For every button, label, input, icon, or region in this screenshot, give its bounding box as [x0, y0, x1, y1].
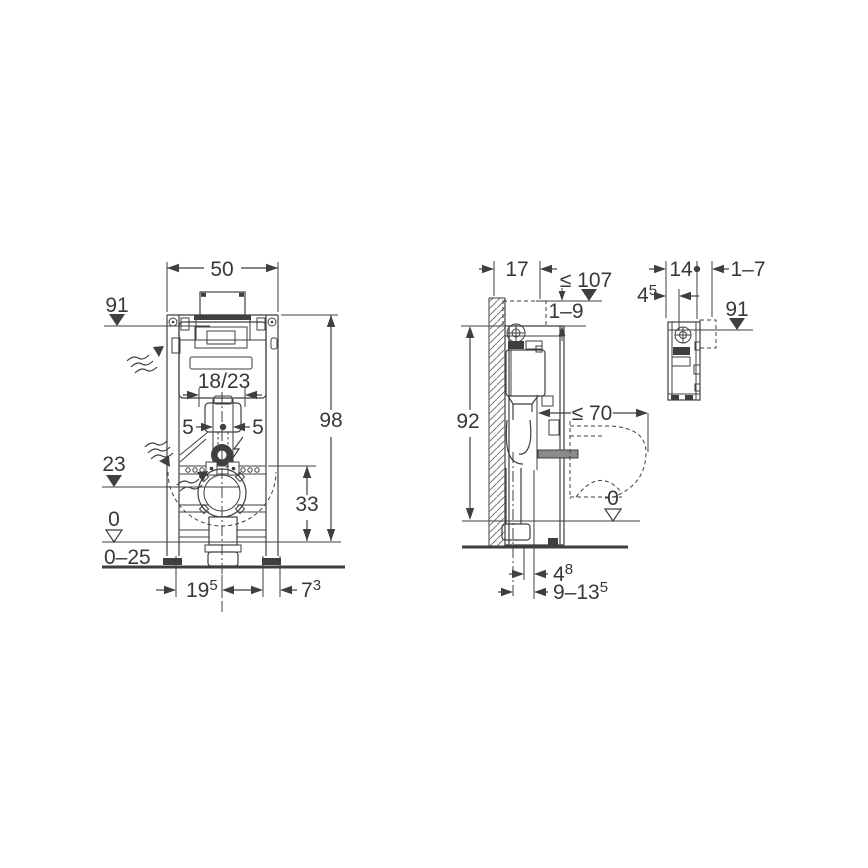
dim-label: 50 — [210, 258, 233, 281]
threaded-rod — [538, 450, 578, 458]
dim-label: 17 — [505, 258, 528, 281]
detail-level-91: 91 — [697, 298, 753, 330]
dim-label: 98 — [319, 409, 342, 432]
dim-front-width: 50 — [167, 258, 278, 312]
dim-label: 33 — [295, 493, 318, 516]
level-label: 91 — [725, 298, 748, 321]
dim-label: 5 — [182, 416, 194, 439]
side-view: 17 ≤ 107 1–9 92 — [456, 258, 648, 604]
front-actuator-box — [194, 292, 251, 320]
front-floor: 0–25 — [102, 546, 345, 569]
dim-label: 14 — [669, 258, 693, 281]
detail-actuator-box — [700, 320, 716, 348]
level-label: 0 — [108, 508, 120, 531]
level-marker-filled — [106, 475, 122, 487]
level-marker-open — [106, 530, 122, 542]
dim-side-cladding: 1–9 — [548, 300, 586, 341]
side-frame — [505, 326, 564, 547]
level-label: 0 — [607, 487, 619, 510]
level-marker-filled — [729, 318, 745, 330]
level-label: ≤ 107 — [560, 269, 612, 292]
front-view: 50 98 91 18/23 5 — [102, 258, 345, 615]
dim-label: 5 — [252, 416, 264, 439]
foot-plate — [163, 558, 182, 565]
side-wall — [489, 298, 505, 547]
level-label: 23 — [102, 453, 125, 476]
datum-dot — [220, 424, 226, 430]
detail-body — [668, 320, 716, 400]
dim-label: 1–7 — [730, 258, 765, 281]
dim-side-bottom: 48 9–135 — [498, 548, 608, 604]
dim-label: 195 — [186, 577, 218, 602]
technical-drawing-page: 50 98 91 18/23 5 — [0, 0, 868, 868]
inspection-window — [195, 327, 247, 348]
flow-arrow-icon — [127, 346, 164, 373]
level-label: 91 — [105, 294, 128, 317]
front-level-91: 91 — [104, 294, 210, 326]
foot-plate — [262, 558, 281, 565]
dim-side-pan-depth: ≤ 70 — [538, 402, 648, 452]
detail-view: 14 1–7 45 91 — [637, 258, 766, 400]
dim-side-depth: 17 — [479, 258, 557, 299]
dim-front-offsets: 5 5 — [182, 416, 264, 439]
dim-label: 1–9 — [548, 300, 583, 323]
technical-drawing: 50 98 91 18/23 5 — [0, 0, 868, 868]
dim-label: 9–135 — [553, 579, 608, 604]
flow-arrow-icon — [145, 441, 173, 467]
dim-label: 73 — [301, 577, 321, 602]
datum-dot — [694, 266, 700, 272]
side-level-max-height: ≤ 107 — [536, 269, 612, 301]
level-marker-open — [605, 509, 621, 521]
dim-label: 18/23 — [198, 370, 251, 393]
side-cistern — [502, 324, 578, 599]
level-marker-filled — [109, 314, 125, 326]
dim-label: ≤ 70 — [572, 402, 613, 425]
dim-label: 92 — [456, 410, 479, 433]
side-actuator-box — [503, 301, 546, 326]
